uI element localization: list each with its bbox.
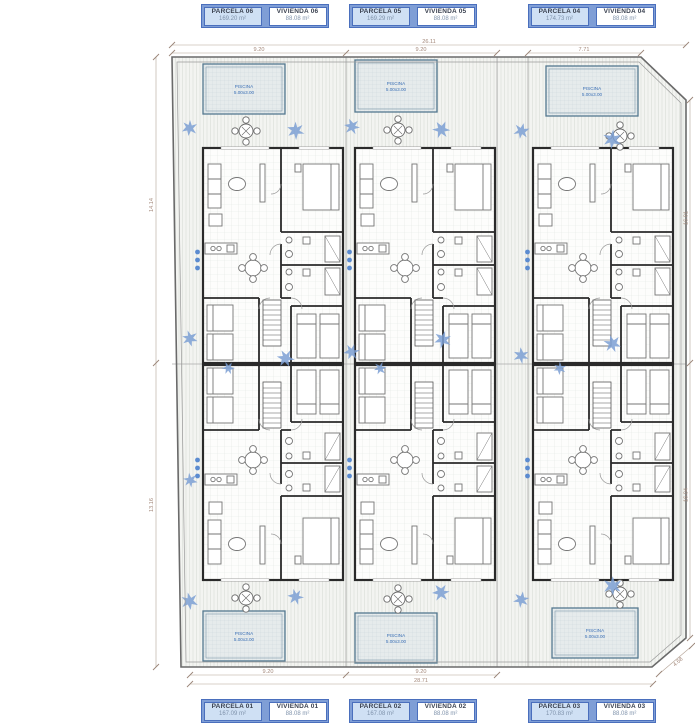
units-top-row: [195, 147, 673, 363]
svg-text:5.00x3.00: 5.00x3.00: [386, 639, 407, 644]
parcel-label-06: PARCELA 06 169.20 m² VIVIENDA 06 88.08 m…: [201, 4, 329, 28]
parcela-name: PARCELA 06: [212, 8, 254, 16]
pool: PISCINA 5.00x3.00: [203, 611, 285, 661]
parcela-area: 174.73 m²: [546, 16, 573, 24]
site-plan-page: PISCINA 5.00x3.00 PISCINA 5.00x3.00 PISC…: [0, 0, 695, 727]
svg-text:5.00x3.00: 5.00x3.00: [234, 90, 255, 95]
parcela-name: PARCELA 04: [539, 8, 581, 16]
parcel-label-04: PARCELA 04 174.73 m² VIVIENDA 04 88.08 m…: [528, 4, 656, 28]
parcela-area: 169.29 m²: [367, 16, 394, 24]
parcela-name: PARCELA 03: [539, 703, 581, 711]
pool: PISCINA 5.00x3.00: [203, 64, 285, 114]
pool: PISCINA 5.00x3.00: [552, 608, 638, 658]
svg-text:5.00x3.00: 5.00x3.00: [585, 634, 606, 639]
dim-bottom-total: 28.71: [414, 678, 428, 684]
dim-bottom-seg1: 9.20: [263, 669, 274, 675]
svg-text:PISCINA: PISCINA: [586, 628, 605, 633]
pool: PISCINA 5.00x3.00: [546, 66, 638, 116]
dim-right-upper: 16.01: [684, 211, 690, 225]
vivienda-name: VIVIENDA 06: [277, 8, 319, 16]
vivienda-area: 88.08 m²: [434, 16, 458, 24]
dim-top-seg3: 7.71: [579, 47, 590, 53]
vivienda-name: VIVIENDA 01: [277, 703, 319, 711]
vivienda-area: 88.08 m²: [286, 16, 310, 24]
svg-text:PISCINA: PISCINA: [235, 84, 254, 89]
vivienda-cell: VIVIENDA 02 88.08 m²: [417, 702, 475, 721]
vivienda-area: 88.08 m²: [286, 711, 310, 719]
parcela-cell: PARCELA 05 169.29 m²: [352, 7, 410, 26]
parcela-cell: PARCELA 01 167.09 m²: [204, 702, 262, 721]
pool: PISCINA 5.00x3.00: [355, 613, 437, 663]
svg-text:5.00x3.00: 5.00x3.00: [386, 87, 407, 92]
vivienda-cell: VIVIENDA 06 88.08 m²: [269, 7, 327, 26]
parcela-cell: PARCELA 04 174.73 m²: [531, 7, 589, 26]
parcela-cell: PARCELA 02 167.08 m²: [352, 702, 410, 721]
dimension-tick: [656, 671, 662, 677]
parcela-cell: PARCELA 06 169.20 m²: [204, 7, 262, 26]
dim-diagonal: 4.68: [672, 656, 684, 668]
dimension-tick: [689, 643, 695, 649]
svg-text:PISCINA: PISCINA: [387, 633, 406, 638]
parcela-name: PARCELA 05: [360, 8, 402, 16]
parcela-area: 167.09 m²: [219, 711, 246, 719]
vivienda-name: VIVIENDA 03: [604, 703, 646, 711]
vivienda-cell: VIVIENDA 03 88.08 m²: [596, 702, 654, 721]
svg-text:5.00x3.00: 5.00x3.00: [582, 92, 603, 97]
dim-top-seg1: 9.20: [254, 47, 265, 53]
vivienda-area: 88.08 m²: [613, 16, 637, 24]
parcela-name: PARCELA 01: [212, 703, 254, 711]
parcel-label-01: PARCELA 01 167.09 m² VIVIENDA 01 88.08 m…: [201, 699, 329, 723]
parcela-name: PARCELA 02: [360, 703, 402, 711]
dim-top-total: 26.11: [422, 39, 436, 45]
vivienda-cell: VIVIENDA 05 88.08 m²: [417, 7, 475, 26]
vivienda-name: VIVIENDA 02: [425, 703, 467, 711]
vivienda-name: VIVIENDA 04: [604, 8, 646, 16]
dim-left-upper: 14.14: [149, 198, 155, 212]
vivienda-cell: VIVIENDA 01 88.08 m²: [269, 702, 327, 721]
parcela-area: 169.20 m²: [219, 16, 246, 24]
svg-text:PISCINA: PISCINA: [387, 81, 406, 86]
dim-left-lower: 13.16: [149, 498, 155, 512]
vivienda-area: 88.08 m²: [434, 711, 458, 719]
dim-right-lower: 16.04: [684, 488, 690, 502]
dim-bottom-seg2: 9.20: [416, 669, 427, 675]
parcel-label-02: PARCELA 02 167.08 m² VIVIENDA 02 88.08 m…: [349, 699, 477, 723]
parcela-area: 170.83 m²: [546, 711, 573, 719]
svg-text:PISCINA: PISCINA: [583, 86, 602, 91]
parcel-label-03: PARCELA 03 170.83 m² VIVIENDA 03 88.08 m…: [528, 699, 656, 723]
floor-plan-svg: PISCINA 5.00x3.00 PISCINA 5.00x3.00 PISC…: [0, 0, 695, 727]
parcela-cell: PARCELA 03 170.83 m²: [531, 702, 589, 721]
svg-text:5.00x3.00: 5.00x3.00: [234, 637, 255, 642]
dim-top-seg2: 9.20: [416, 47, 427, 53]
vivienda-area: 88.08 m²: [613, 711, 637, 719]
pool: PISCINA 5.00x3.00: [355, 60, 437, 112]
vivienda-name: VIVIENDA 05: [425, 8, 467, 16]
parcela-area: 167.08 m²: [367, 711, 394, 719]
parcel-label-05: PARCELA 05 169.29 m² VIVIENDA 05 88.08 m…: [349, 4, 477, 28]
svg-text:PISCINA: PISCINA: [235, 631, 254, 636]
vivienda-cell: VIVIENDA 04 88.08 m²: [596, 7, 654, 26]
units-bottom-row: [195, 365, 673, 581]
